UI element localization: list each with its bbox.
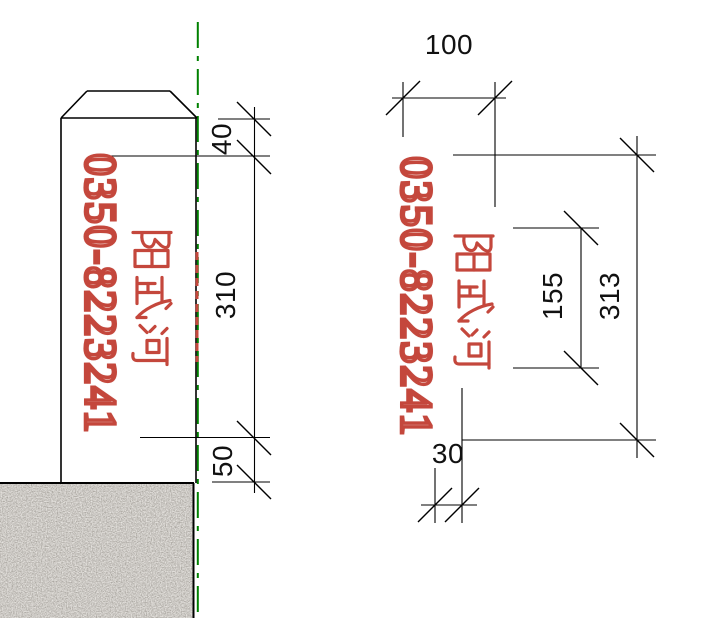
hanzi-wu (459, 281, 493, 321)
dimension-30 (421, 468, 477, 523)
dim-label-30: 30 (426, 439, 470, 469)
phone-number-left: 0350-8223241 (75, 149, 125, 439)
hanzi-yang (455, 236, 493, 270)
dim-label-100: 100 (419, 30, 479, 60)
reference-lines-right (453, 155, 656, 523)
dim-label-310: 310 (211, 265, 241, 325)
hanzi-he (455, 329, 489, 368)
dim-label-50: 50 (208, 439, 238, 483)
river-name-left (133, 233, 171, 365)
phone-number-right: 0350-8223241 (391, 152, 441, 442)
dim-label-313: 313 (595, 266, 625, 326)
hanzi-he (133, 326, 167, 365)
hanzi-yang (133, 233, 171, 267)
river-name-right (455, 236, 493, 368)
ground-section (0, 483, 194, 618)
hanzi-wu (137, 278, 171, 318)
dim-label-40: 40 (207, 117, 237, 161)
dim-label-155: 155 (538, 266, 568, 326)
drawing-canvas: 0350-8223241 0350-8223241 40 310 50 100 … (0, 0, 718, 618)
